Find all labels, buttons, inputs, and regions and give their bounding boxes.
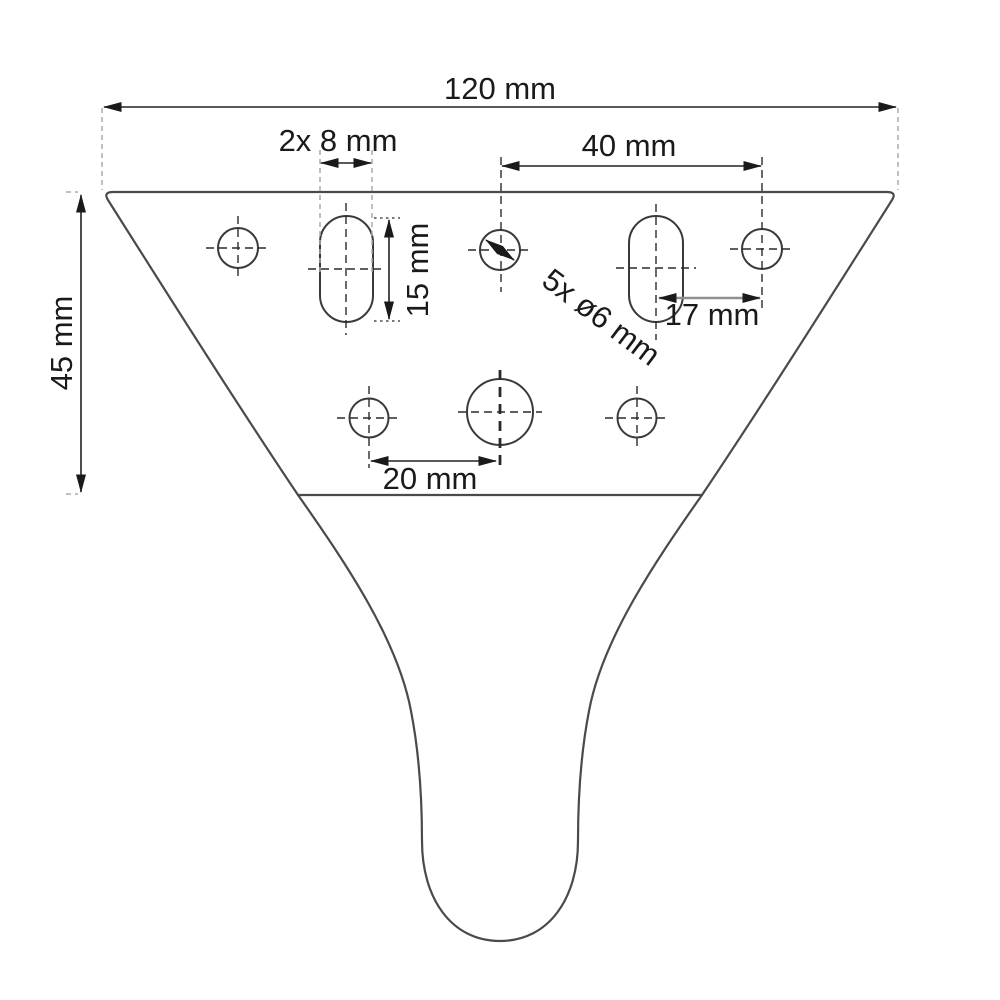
label-slot-to-hole: 17 mm [665,297,760,332]
label-top-hole-spacing: 40 mm [582,128,677,163]
drawing-svg: 120 mm 2x 8 mm 40 mm 15 mm 45 mm 5x ø6 m… [0,0,1000,1000]
label-middle-hole-spacing: 20 mm [383,461,478,496]
label-slot-height: 15 mm [400,223,435,318]
label-overall-width: 120 mm [444,71,556,106]
leg-outline [106,192,893,941]
extension-lines [66,108,898,494]
technical-drawing-canvas: 120 mm 2x 8 mm 40 mm 15 mm 45 mm 5x ø6 m… [0,0,1000,1000]
label-plate-height: 45 mm [44,296,79,391]
label-slot-count-width: 2x 8 mm [279,123,398,158]
label-hole-diameter: 5x ø6 mm [536,262,667,373]
